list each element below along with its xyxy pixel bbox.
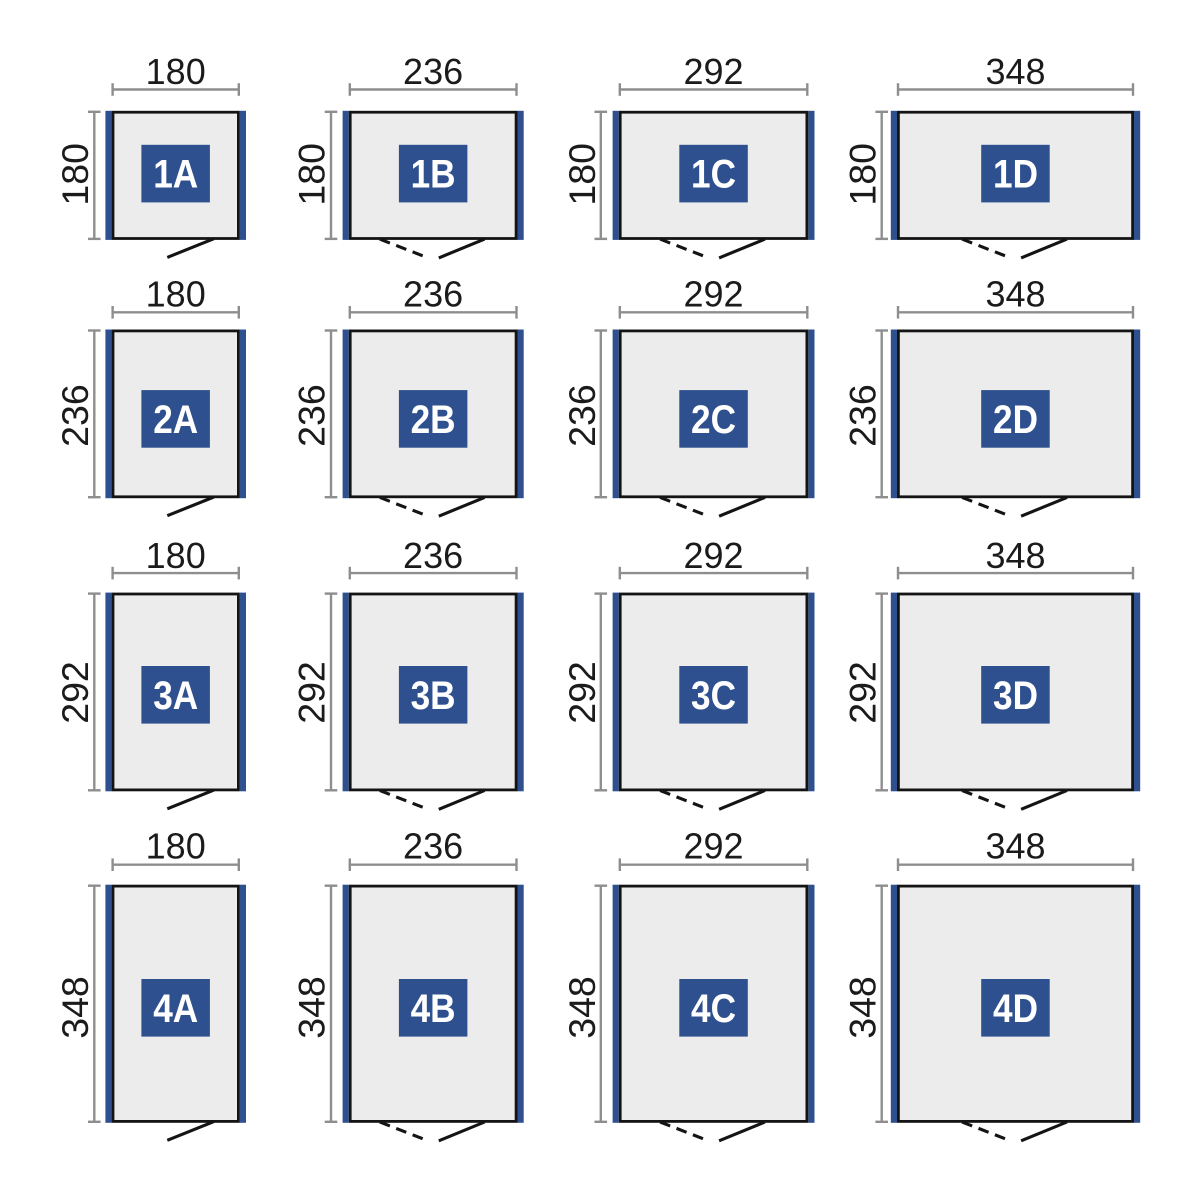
svg-text:2A: 2A: [153, 398, 198, 442]
svg-text:1C: 1C: [691, 153, 736, 197]
svg-text:348: 348: [985, 826, 1045, 867]
svg-text:4A: 4A: [153, 987, 198, 1031]
svg-text:292: 292: [54, 661, 96, 724]
svg-text:348: 348: [54, 976, 96, 1039]
svg-text:180: 180: [146, 274, 206, 315]
svg-text:4B: 4B: [411, 987, 456, 1031]
svg-text:236: 236: [842, 384, 884, 447]
svg-text:236: 236: [561, 384, 603, 447]
svg-text:292: 292: [561, 661, 603, 724]
svg-text:236: 236: [54, 384, 96, 447]
svg-text:292: 292: [291, 661, 333, 724]
svg-text:3D: 3D: [993, 674, 1038, 718]
svg-text:180: 180: [842, 143, 884, 206]
svg-text:236: 236: [403, 535, 463, 576]
svg-text:292: 292: [683, 51, 743, 92]
svg-text:348: 348: [985, 535, 1045, 576]
svg-text:292: 292: [683, 274, 743, 315]
svg-text:180: 180: [146, 535, 206, 576]
svg-text:4C: 4C: [691, 987, 736, 1031]
svg-text:180: 180: [291, 143, 333, 206]
svg-text:180: 180: [54, 143, 96, 206]
svg-text:1D: 1D: [993, 153, 1038, 197]
svg-text:2B: 2B: [411, 398, 456, 442]
svg-text:348: 348: [985, 274, 1045, 315]
svg-text:348: 348: [291, 976, 333, 1039]
svg-text:348: 348: [842, 976, 884, 1039]
svg-text:2D: 2D: [993, 398, 1038, 442]
svg-text:348: 348: [561, 976, 603, 1039]
svg-text:1B: 1B: [411, 153, 456, 197]
svg-text:292: 292: [842, 661, 884, 724]
svg-text:236: 236: [403, 274, 463, 315]
svg-text:1A: 1A: [153, 153, 198, 197]
svg-text:236: 236: [403, 51, 463, 92]
svg-text:4D: 4D: [993, 987, 1038, 1031]
svg-text:2C: 2C: [691, 398, 736, 442]
svg-text:180: 180: [561, 143, 603, 206]
svg-text:180: 180: [146, 51, 206, 92]
svg-text:3A: 3A: [153, 674, 198, 718]
svg-text:292: 292: [683, 826, 743, 867]
svg-text:236: 236: [291, 384, 333, 447]
svg-text:3B: 3B: [411, 674, 456, 718]
svg-text:348: 348: [985, 51, 1045, 92]
svg-text:180: 180: [146, 826, 206, 867]
svg-text:236: 236: [403, 826, 463, 867]
svg-text:292: 292: [683, 535, 743, 576]
svg-text:3C: 3C: [691, 674, 736, 718]
